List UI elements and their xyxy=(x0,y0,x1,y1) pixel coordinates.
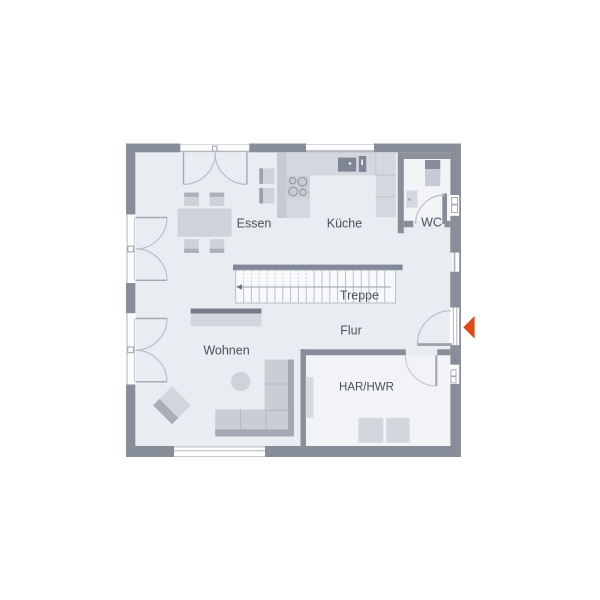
svg-text:WC: WC xyxy=(421,216,442,230)
svg-text:Flur: Flur xyxy=(340,324,362,338)
svg-text:HAR/HWR: HAR/HWR xyxy=(339,382,394,394)
svg-text:Küche: Küche xyxy=(327,217,362,231)
svg-text:Wohnen: Wohnen xyxy=(203,344,249,358)
svg-text:Essen: Essen xyxy=(237,217,272,231)
svg-text:Treppe: Treppe xyxy=(340,289,379,303)
